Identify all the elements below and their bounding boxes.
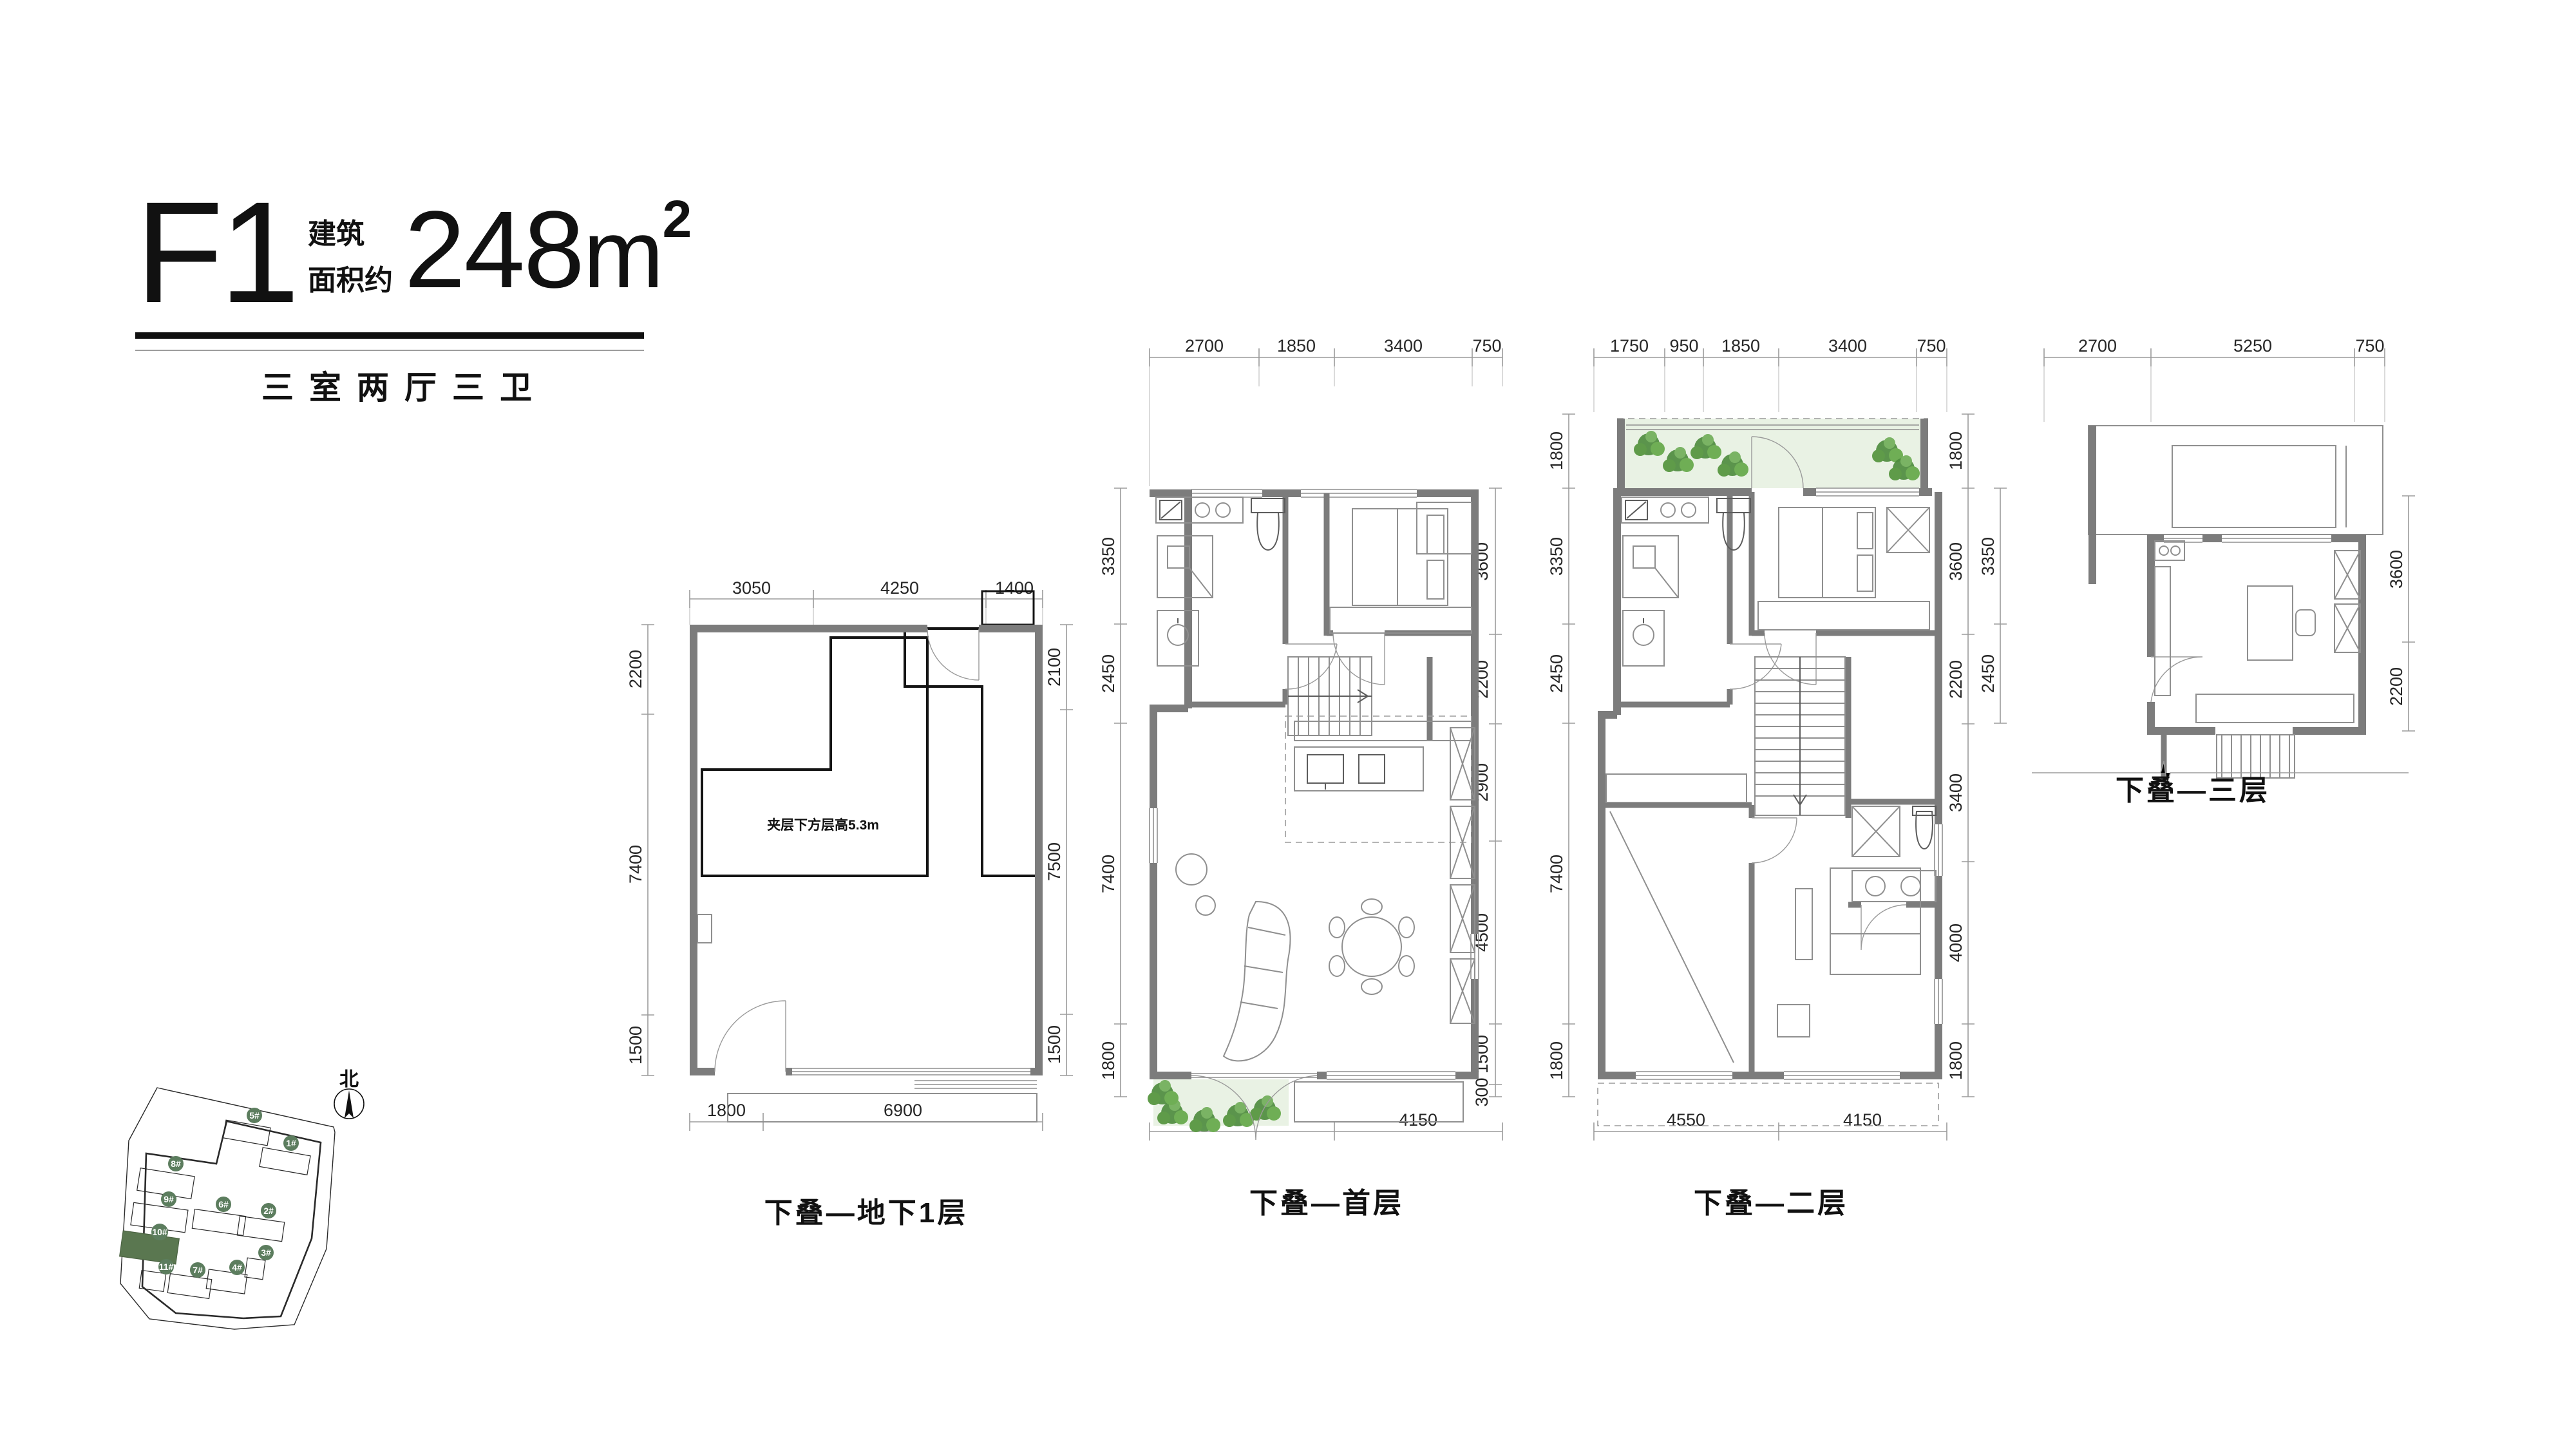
third-floor-label: 下叠—三层 xyxy=(2116,775,2270,806)
ff-garden xyxy=(1148,1075,1463,1140)
svg-text:4250: 4250 xyxy=(880,578,919,598)
sf-bedroom-bottom-furniture xyxy=(1777,868,1920,1037)
svg-text:300: 300 xyxy=(1472,1077,1492,1106)
svg-text:3#: 3# xyxy=(261,1247,271,1258)
svg-text:950: 950 xyxy=(1669,336,1698,355)
ff-dims-left: 3350 2450 7400 1800 xyxy=(1099,488,1127,1097)
basement-dims-left: 2200 7400 1500 xyxy=(626,625,654,1075)
floorplan-sheet: F1 建筑 面积约 248m2 三室两厅三卫 3050 4250 1400 22… xyxy=(0,0,2576,1449)
basement-mezzanine-hatch: 夹层下方层高5.3m xyxy=(702,591,1039,876)
svg-text:3350: 3350 xyxy=(1978,537,1998,576)
title-rule-thin xyxy=(135,350,644,351)
plan-third-floor: 2700 5250 750 3350 2450 3600 2200 xyxy=(1971,296,2421,805)
svg-text:7400: 7400 xyxy=(1099,855,1118,893)
title-block: F1 建筑 面积约 248m2 三室两厅三卫 xyxy=(135,193,650,406)
ff-stairs xyxy=(1288,657,1372,735)
svg-text:1850: 1850 xyxy=(1277,336,1316,355)
svg-text:2700: 2700 xyxy=(1185,336,1224,355)
svg-text:1400: 1400 xyxy=(995,578,1034,598)
svg-text:2450: 2450 xyxy=(1099,654,1118,693)
site-buildings xyxy=(120,1120,310,1298)
area-unit: m xyxy=(583,200,663,308)
tf-terrace xyxy=(2088,426,2383,584)
svg-text:11#: 11# xyxy=(159,1262,174,1272)
svg-text:1500: 1500 xyxy=(1045,1025,1064,1064)
sf-stairs xyxy=(1755,657,1845,815)
svg-text:7500: 7500 xyxy=(1045,842,1064,881)
svg-text:9#: 9# xyxy=(164,1194,174,1204)
first-floor-label: 下叠—首层 xyxy=(1249,1188,1404,1219)
plan-second-floor: 1750 950 1850 3400 750 1800 3350 2450 74… xyxy=(1539,296,2035,1236)
svg-text:3350: 3350 xyxy=(1099,537,1118,576)
svg-text:1800: 1800 xyxy=(1547,431,1566,470)
ff-dims-top: 2700 1850 3400 750 xyxy=(1150,336,1502,486)
svg-text:10#: 10# xyxy=(152,1227,167,1237)
tf-dims-left: 3350 2450 xyxy=(1978,488,2007,723)
sf-bath2 xyxy=(1852,806,1936,902)
ff-bathroom xyxy=(1156,497,1285,666)
svg-text:1850: 1850 xyxy=(1721,336,1760,355)
svg-text:6900: 6900 xyxy=(884,1101,922,1120)
svg-text:3600: 3600 xyxy=(1946,542,1965,581)
svg-text:3350: 3350 xyxy=(1547,537,1566,576)
svg-text:7400: 7400 xyxy=(1547,855,1566,893)
sf-roof-garden xyxy=(1617,419,1928,488)
svg-text:4550: 4550 xyxy=(1667,1110,1705,1130)
area-label-line1: 建筑 xyxy=(308,211,393,258)
tf-walls xyxy=(2147,535,2366,779)
tf-dims-right: 3600 2200 xyxy=(2387,496,2415,731)
svg-text:1750: 1750 xyxy=(1610,336,1649,355)
svg-text:1800: 1800 xyxy=(1946,431,1965,470)
basement-label: 下叠—地下1层 xyxy=(764,1197,968,1229)
sf-dims-top: 1750 950 1850 3400 750 xyxy=(1594,336,1947,412)
area-label: 建筑 面积约 xyxy=(308,211,393,304)
sf-room-bottom-left xyxy=(1606,774,1747,1063)
svg-text:1800: 1800 xyxy=(1946,1041,1965,1080)
svg-text:1800: 1800 xyxy=(1547,1041,1566,1080)
svg-text:6#: 6# xyxy=(218,1199,229,1209)
north-label: 北 xyxy=(339,1069,359,1090)
site-plan: 5# 1# 8# 9# 6# 2# 10# 3# 11# 7# 4# 北 xyxy=(109,1018,470,1346)
tf-stairs xyxy=(2217,735,2295,778)
svg-text:1800: 1800 xyxy=(707,1101,746,1120)
north-arrow-icon: 北 xyxy=(334,1069,364,1119)
sf-bedroom-top-furniture xyxy=(1758,507,1929,630)
area-label-line2: 面积约 xyxy=(308,258,393,304)
area-exponent: 2 xyxy=(663,190,691,249)
sf-porch xyxy=(1598,1083,1938,1126)
mezzanine-note: 夹层下方层高5.3m xyxy=(767,817,879,833)
svg-text:2200: 2200 xyxy=(626,650,645,688)
svg-text:750: 750 xyxy=(1917,336,1946,355)
svg-text:1#: 1# xyxy=(286,1138,296,1148)
plan-basement: 3050 4250 1400 2200 7400 1500 2100 7500 … xyxy=(618,567,1108,1256)
basement-dims-bottom: 1800 6900 xyxy=(690,1101,1043,1131)
svg-text:3600: 3600 xyxy=(2387,550,2406,589)
svg-text:3400: 3400 xyxy=(1946,773,1965,812)
svg-text:7400: 7400 xyxy=(626,845,645,884)
svg-text:2#: 2# xyxy=(263,1206,274,1216)
plan-first-floor: 2700 1850 3400 750 3350 2450 7400 1800 3… xyxy=(1095,296,1571,1236)
svg-text:750: 750 xyxy=(1472,336,1501,355)
svg-text:2700: 2700 xyxy=(2078,336,2117,355)
svg-text:4150: 4150 xyxy=(1843,1110,1882,1130)
tf-dims-top: 2700 5250 750 xyxy=(2044,336,2385,422)
tf-furniture xyxy=(2155,541,2360,723)
svg-text:4#: 4# xyxy=(232,1262,242,1273)
svg-text:1800: 1800 xyxy=(1099,1041,1118,1080)
layout-subtitle: 三室两厅三卫 xyxy=(261,362,547,408)
svg-text:4000: 4000 xyxy=(1946,923,1965,962)
basement-lightwell xyxy=(728,1081,1037,1122)
unit-code: F1 xyxy=(135,188,296,317)
svg-text:7#: 7# xyxy=(193,1265,203,1275)
svg-text:3400: 3400 xyxy=(1384,336,1423,355)
svg-text:5250: 5250 xyxy=(2233,336,2272,355)
basement-dims-right: 2100 7500 1500 xyxy=(1045,625,1073,1075)
svg-text:2200: 2200 xyxy=(2387,667,2406,706)
ff-bedroom-furniture xyxy=(1330,502,1472,633)
svg-text:3400: 3400 xyxy=(1828,336,1867,355)
svg-text:750: 750 xyxy=(2355,336,2384,355)
svg-text:8#: 8# xyxy=(171,1159,181,1169)
highlighted-building-10 xyxy=(120,1231,180,1264)
svg-text:4150: 4150 xyxy=(1399,1110,1437,1130)
svg-text:2100: 2100 xyxy=(1045,648,1064,687)
svg-text:2200: 2200 xyxy=(1946,660,1965,699)
svg-text:1500: 1500 xyxy=(626,1026,645,1065)
sf-dims-left: 1800 3350 2450 7400 1800 xyxy=(1547,414,1575,1097)
svg-text:2450: 2450 xyxy=(1547,654,1566,693)
title-rule-thick xyxy=(135,332,644,339)
svg-text:2450: 2450 xyxy=(1978,654,1998,693)
area-value: 248m2 xyxy=(404,187,690,313)
svg-text:3050: 3050 xyxy=(732,578,771,598)
basement-walls xyxy=(690,625,1043,1075)
ff-walls xyxy=(1150,489,1479,1079)
second-floor-label: 下叠—二层 xyxy=(1694,1188,1848,1219)
svg-text:5#: 5# xyxy=(249,1110,260,1121)
basement-dims-top: 3050 4250 1400 xyxy=(690,578,1043,625)
ff-living-dining xyxy=(1176,854,1414,1061)
